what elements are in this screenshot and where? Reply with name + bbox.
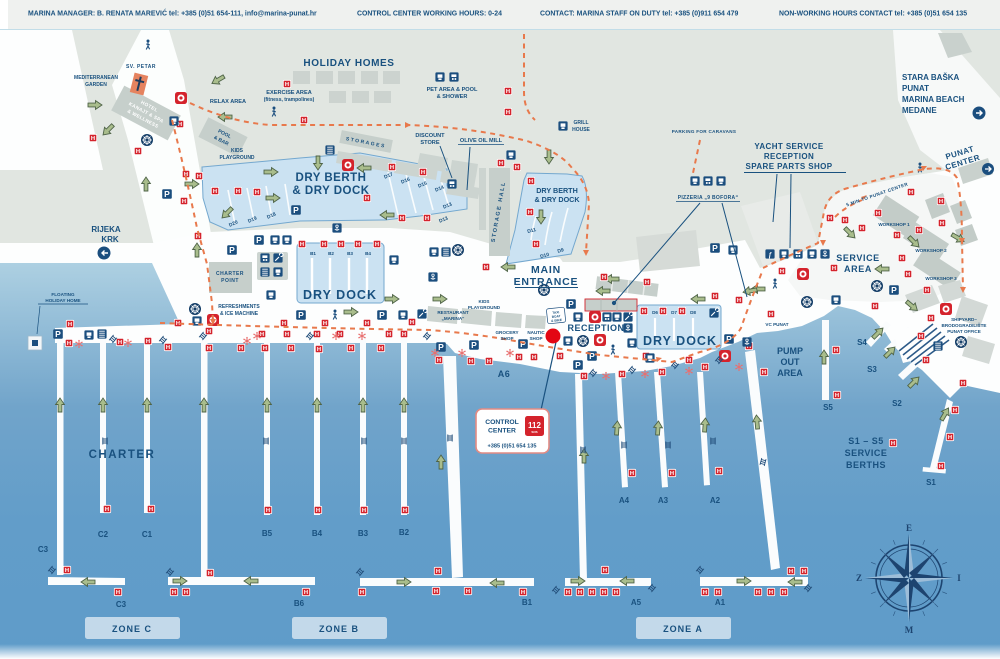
svg-text:KIDS: KIDS [479,299,490,304]
svg-text:M: M [905,625,914,635]
svg-text:NAUTIC: NAUTIC [527,330,545,335]
svg-text:C3: C3 [38,545,49,554]
svg-text:S1 – S5: S1 – S5 [848,436,884,446]
svg-text:SHOP: SHOP [529,336,542,341]
svg-text:PUNAT OFFICE: PUNAT OFFICE [947,329,981,334]
svg-text:MEDITERRANEAN: MEDITERRANEAN [74,75,118,81]
svg-text:A5: A5 [631,598,642,607]
svg-text:BRODOGRADILIŠTE: BRODOGRADILIŠTE [942,321,987,328]
svg-text:SERVICE: SERVICE [845,448,888,458]
svg-text:A6: A6 [498,369,511,379]
svg-text:GRILL: GRILL [574,120,589,126]
svg-text:DISCOUNT: DISCOUNT [415,133,445,139]
svg-text:NON-WORKING HOURS CONTACT tel:: NON-WORKING HOURS CONTACT tel: +385 (0)5… [779,11,967,18]
svg-text:DRY DOCK: DRY DOCK [643,334,717,348]
svg-text:OUT: OUT [781,357,801,367]
svg-text:MARINA BEACH: MARINA BEACH [902,95,965,104]
svg-text:+385 (0)51 654 135: +385 (0)51 654 135 [488,444,537,450]
svg-text:S1: S1 [926,478,936,487]
svg-text:B3: B3 [347,251,353,256]
svg-text:PIZZERIA „9 BOFORA“: PIZZERIA „9 BOFORA“ [678,195,739,201]
svg-text:ZONE C: ZONE C [112,624,152,634]
svg-text:C2: C2 [98,530,109,539]
svg-text:C1: C1 [142,530,153,539]
svg-text:S5: S5 [823,403,833,412]
svg-text:CONTROL: CONTROL [485,419,519,426]
svg-text:B5: B5 [262,529,273,538]
svg-text:SOS: SOS [531,430,537,434]
svg-text:RESTAURANT: RESTAURANT [437,310,468,315]
svg-text:CHARTER: CHARTER [89,449,156,461]
svg-text:MAIN: MAIN [531,264,561,276]
svg-text:S4: S4 [857,338,867,347]
svg-text:A2: A2 [710,496,721,505]
svg-text:Z: Z [856,573,862,583]
svg-text:A4: A4 [619,496,630,505]
svg-text:AREA: AREA [777,368,803,378]
svg-text:S3: S3 [867,365,877,374]
svg-text:PUMP: PUMP [777,346,803,356]
svg-text:DRY DOCK: DRY DOCK [303,288,377,302]
svg-text:GARDEN: GARDEN [85,82,107,88]
svg-text:B3: B3 [358,529,369,538]
svg-text:DRY BERTH: DRY BERTH [536,186,578,195]
svg-text:MEDANE: MEDANE [902,106,937,115]
svg-text:WORKSHOP 3: WORKSHOP 3 [925,276,957,281]
svg-text:MARINA MANAGER: B. RENATA MARE: MARINA MANAGER: B. RENATA MAREVIĆ tel: +… [28,9,317,18]
svg-text:HOUSE: HOUSE [572,127,590,133]
svg-text:„MARINA“: „MARINA“ [442,316,465,321]
svg-text:B4: B4 [365,251,371,256]
svg-text:HOLIDAY HOME: HOLIDAY HOME [45,298,80,303]
svg-text:D7: D7 [671,310,677,315]
svg-text:DRY BERTH: DRY BERTH [296,172,367,184]
svg-text:(fitness, trampolines): (fitness, trampolines) [264,97,315,103]
svg-text:AREA: AREA [844,264,872,274]
svg-text:BERTHS: BERTHS [846,460,886,470]
svg-text:FLOATING: FLOATING [51,292,75,297]
svg-text:SHIPYARD–: SHIPYARD– [951,317,977,322]
svg-text:A3: A3 [658,496,669,505]
svg-text:PET AREA & POOL: PET AREA & POOL [427,87,478,93]
svg-text:KRK: KRK [101,235,119,244]
svg-text:PARKING FOR CARAVANS: PARKING FOR CARAVANS [672,129,736,134]
svg-text:EXERCISE AREA: EXERCISE AREA [266,90,312,96]
svg-text:112: 112 [528,421,541,430]
svg-text:SPARE PARTS SHOP: SPARE PARTS SHOP [745,162,832,171]
svg-text:& ICE MACHINE: & ICE MACHINE [220,311,259,317]
svg-text:C3: C3 [116,600,127,609]
svg-text:I: I [957,573,961,583]
svg-text:SV. PETAR: SV. PETAR [126,64,156,70]
svg-text:REFRESHMENTS: REFRESHMENTS [218,304,260,310]
svg-text:KIDS: KIDS [231,148,244,154]
svg-text:STORE: STORE [420,140,439,146]
svg-text:PLAYGROUND: PLAYGROUND [219,155,254,161]
svg-text:S2: S2 [892,399,902,408]
svg-text:RECEPTION: RECEPTION [567,323,624,333]
svg-text:ENTRANCE: ENTRANCE [514,276,579,288]
svg-text:WORKSHOP 2: WORKSHOP 2 [915,248,947,253]
svg-text:HOLIDAY HOMES: HOLIDAY HOMES [303,58,394,69]
svg-text:B4: B4 [312,529,323,538]
svg-text:POINT: POINT [221,278,239,284]
svg-text:SHOP: SHOP [500,336,513,341]
svg-text:VC PUNAT: VC PUNAT [765,322,788,327]
svg-text:RECEPTION: RECEPTION [764,152,814,161]
svg-text:B1: B1 [522,598,533,607]
svg-text:D8: D8 [690,310,696,315]
svg-text:SERVICE: SERVICE [836,253,880,263]
svg-text:B2: B2 [399,528,410,537]
svg-text:GROCERY: GROCERY [495,330,518,335]
svg-text:& SHOWER: & SHOWER [437,94,468,100]
svg-text:RIJEKA: RIJEKA [91,225,121,234]
svg-text:CHARTER: CHARTER [216,271,244,277]
svg-text:B6: B6 [294,599,305,608]
svg-text:& DRY DOCK: & DRY DOCK [534,195,580,204]
svg-text:& DRY DOCK: & DRY DOCK [292,185,369,197]
svg-text:D6: D6 [652,310,658,315]
svg-text:A1: A1 [715,598,726,607]
svg-text:STARA BAŠKA: STARA BAŠKA [902,73,960,82]
svg-text:RELAX AREA: RELAX AREA [210,99,246,105]
svg-text:OLIVE OIL MILL: OLIVE OIL MILL [460,138,503,144]
svg-text:B1: B1 [310,251,316,256]
svg-text:B2: B2 [328,251,334,256]
svg-text:E: E [906,523,912,533]
svg-text:YACHT SERVICE: YACHT SERVICE [754,142,823,151]
svg-text:PUNAT: PUNAT [902,84,929,93]
svg-text:CENTER: CENTER [488,428,516,435]
svg-text:WORKSHOP 1: WORKSHOP 1 [878,222,910,227]
svg-text:ZONE A: ZONE A [663,624,703,634]
svg-text:ZONE B: ZONE B [319,624,359,634]
svg-text:PLAYGROUND: PLAYGROUND [468,305,501,310]
svg-text:CONTACT: MARINA STAFF ON DUTY: CONTACT: MARINA STAFF ON DUTY tel: +385 … [540,11,738,18]
svg-text:CONTROL CENTER WORKING HOURS:: CONTROL CENTER WORKING HOURS: 0-24 [357,11,502,18]
